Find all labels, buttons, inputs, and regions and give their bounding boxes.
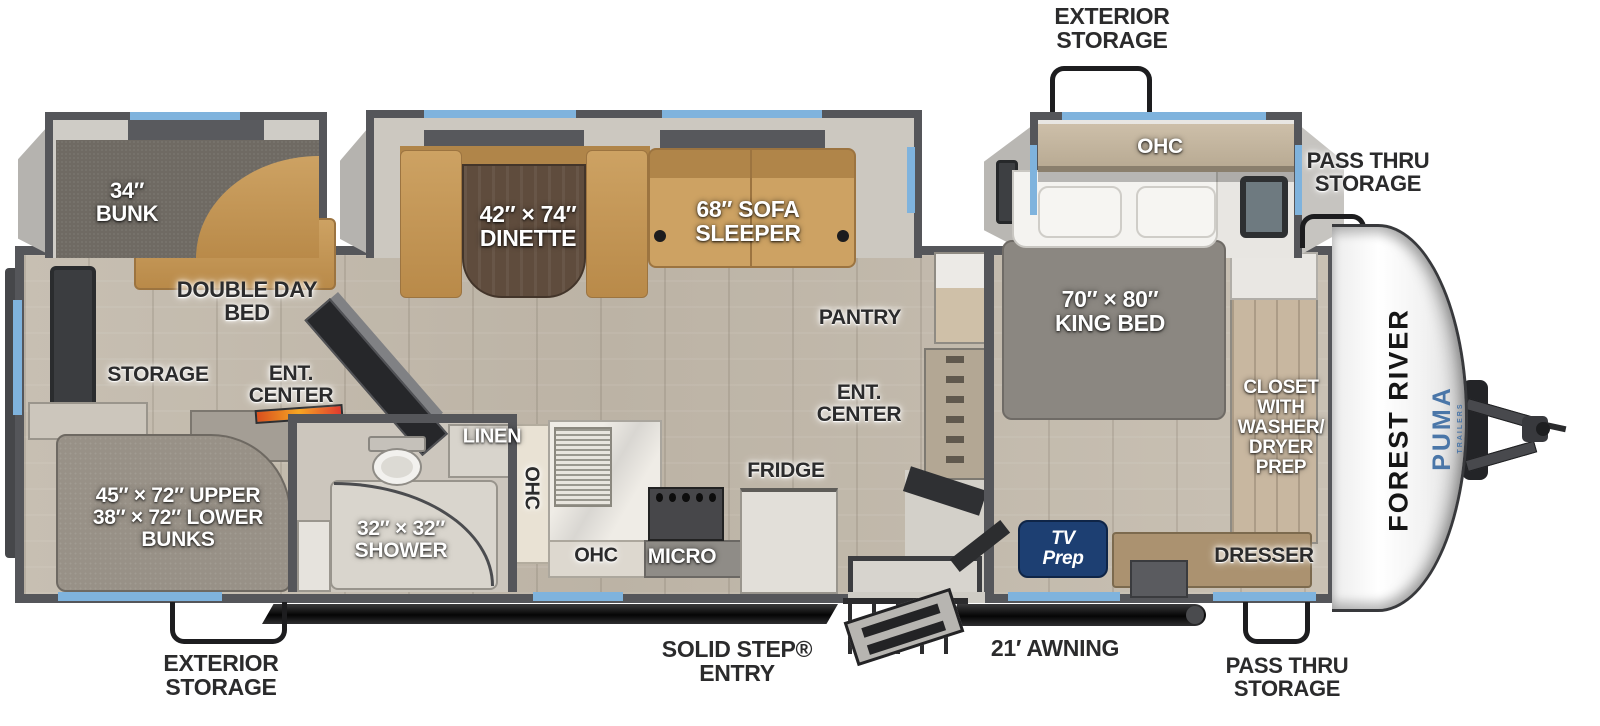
bunkroom-bottom-window [58,592,222,601]
exterior-storage-bottom-label: EXTERIOR STORAGE [163,651,278,699]
exterior-storage-top-bracket [1050,66,1152,112]
burner [696,493,703,502]
closet-washer-dryer-label: CLOSET WITH WASHER/ DRYER PREP [1238,378,1325,478]
bunk-slide-side-wall [18,126,48,254]
bedroom-ohc-label: OHC [1137,136,1183,158]
ent-center-main-label: ENT. CENTER [817,382,902,426]
burner [656,493,663,502]
bathroom-sink [297,520,331,592]
brand-forest-river: FOREST RIVER [1384,308,1415,532]
pantry-cabinet-top [936,254,988,288]
bedroom-bottom-window-left [1008,592,1120,601]
floorplan-diagram: FOREST RIVER PUMA TRAILERS EXTERIOR STOR… [0,0,1600,726]
bunkroom-wall-window [50,266,96,408]
sofa-sleeper-label: 68″ SOFA SLEEPER [695,197,800,245]
king-slide-window-right [1295,145,1302,215]
hitch-ball [1536,422,1550,436]
stove [648,487,724,541]
pillow [1038,186,1122,238]
awning-label: 21′ AWNING [991,636,1119,660]
king-bed-label: 70″ × 80″ KING BED [1055,287,1165,335]
fridge-label: FRIDGE [747,460,825,482]
awning-roller-cap [1186,606,1204,624]
bunk-34-label: 34″ BUNK [96,179,158,225]
awning-bar-right [952,604,1206,626]
bathroom-wall-left [288,414,297,592]
micro-label: MICRO [648,546,717,568]
brand-puma-word: PUMA [1428,385,1457,471]
kitchen-ohc-wall-label: OHC [521,466,542,510]
kitchen-ohc-counter-label: OHC [574,546,618,567]
toilet-seat [381,456,413,478]
shower-label: 32″ × 32″ SHOWER [355,518,448,562]
king-slide-top-window [1062,112,1266,120]
awning-bar-left [262,604,838,624]
burner [709,493,716,502]
linen-label: LINEN [463,427,522,448]
exterior-storage-top-label: EXTERIOR STORAGE [1054,4,1169,52]
closet-top-cabinet [1230,252,1318,300]
pass-thru-bottom-label: PASS THRU STORAGE [1226,654,1349,700]
solid-step-entry-label: SOLID STEP® ENTRY [662,637,812,685]
burner [682,493,689,502]
rear-wall-window [13,300,22,415]
dresser-label: DRESSER [1214,545,1313,567]
dinette-left-seat [400,150,462,298]
brand-puma: PUMA TRAILERS [1428,385,1464,471]
bedroom-bottom-window-right [1213,592,1316,601]
dinette-top-window [424,110,576,118]
pillow [1136,186,1216,238]
double-day-bed-label: DOUBLE DAY BED [177,278,317,324]
sofa-top-window [662,110,822,118]
tv-prep-label: TV Prep [1042,529,1083,569]
pantry-label: PANTRY [819,307,901,329]
storage-label: STORAGE [107,364,208,386]
bunk-valance [128,120,264,142]
pass-thru-bottom-bracket [1243,602,1310,644]
sofa-slide-side-window [907,147,915,213]
bunk-slide-top-window [130,112,240,120]
sofa-cupholder [837,230,849,242]
dinette-slide-side-wall [340,128,368,254]
bedroom-small-cabinet [1130,560,1188,598]
dinette-label: 42″ × 74″ DINETTE [480,202,577,250]
dinette-right-seat [586,150,648,298]
kitchen-sink-cover [554,427,612,507]
exterior-storage-bottom-bracket [170,602,287,644]
king-slide-side-window [1240,176,1288,238]
fridge-box [740,488,838,594]
bathroom-wall-top [288,414,516,423]
pass-thru-right-label: PASS THRU STORAGE [1307,149,1430,195]
sofa-cupholder [654,230,666,242]
king-slide-window-left [1030,145,1037,215]
kitchen-bottom-window [533,592,623,601]
bunks-label: 45″ × 72″ UPPER 38″ × 72″ LOWER BUNKS [93,485,263,551]
brand-puma-sub: TRAILERS [1457,385,1464,471]
ent-center-rear-label: ENT. CENTER [249,363,334,407]
sofa-valance [660,130,825,150]
ent-center-slats [946,356,964,472]
burner [669,493,676,502]
